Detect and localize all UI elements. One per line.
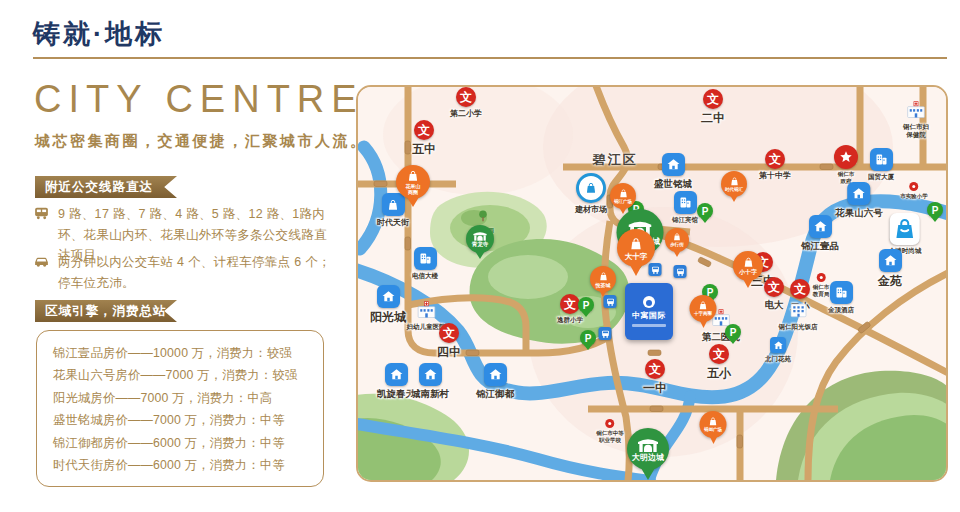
price-list-item: 锦江御都房价——6000 万，消费力：中等	[53, 432, 307, 454]
transport-item-text: 两分钟以内公交车站 4 个、计程车停靠点 6 个；停车位充沛。	[58, 252, 333, 293]
hero-subtitle: 城芯密集商圈，交通便捷，汇聚城市人流。	[35, 132, 368, 151]
transport-ribbon: 附近公交线路直达	[35, 176, 177, 198]
project-name: 中寓国际	[632, 310, 666, 321]
transport-item-car: 两分钟以内公交车站 4 个、计程车停靠点 6 个；停车位充沛。	[33, 252, 333, 293]
price-list-item: 花果山六号房价——7000 万，消费力：较强	[53, 364, 307, 386]
price-list-item: 阳光城房价——7000 万，消费力：中高	[53, 387, 307, 409]
price-list-item: 时代天街房价——6000 万，消费力：中等	[53, 454, 307, 476]
project-subtitle-line	[632, 324, 666, 327]
project-building-marker: 中寓国际	[625, 283, 673, 340]
title-underline	[33, 57, 947, 59]
district-map: 中寓国际 花果山商圈文第二小学文五中文二中文第十中学文三中文电大文二小文四中文一…	[356, 85, 948, 482]
car-icon	[33, 253, 51, 293]
price-list-item: 盛世铭城房价——7000 万，消费力：中等	[53, 409, 307, 431]
consumption-ribbon: 区域引擎，消费总站	[35, 300, 177, 322]
page-title: 铸就·地标	[33, 16, 165, 52]
project-logo-icon	[643, 296, 655, 308]
hero-title: CITY CENTRE	[34, 78, 364, 121]
price-list: 锦江壹品房价——10000 万，消费力：较强 花果山六号房价——7000 万，消…	[36, 330, 324, 487]
price-list-item: 锦江壹品房价——10000 万，消费力：较强	[53, 342, 307, 364]
